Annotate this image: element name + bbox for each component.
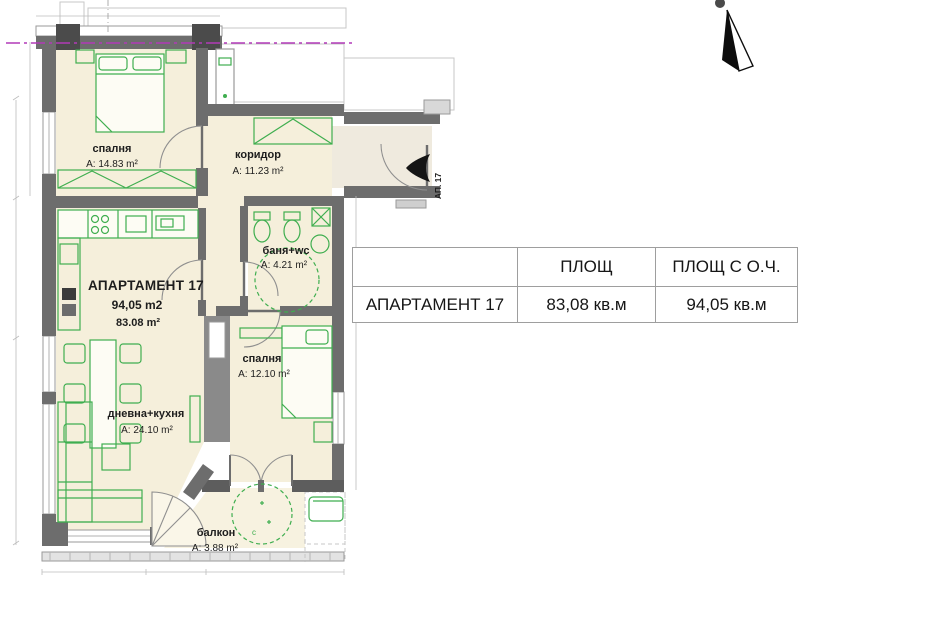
apartment-area-net: 83.08 m²: [116, 317, 160, 329]
room-area-corridor: A: 11.23 m²: [233, 166, 285, 177]
floor-plan-page: спалня A: 14.83 m² коридор A: 11.23 m² б…: [0, 0, 930, 627]
north-arrow-icon: [715, 0, 753, 71]
area-table: ПЛОЩ ПЛОЩ С О.Ч. АПАРТАМЕНТ 17 83,08 кв.…: [352, 247, 798, 323]
room-label-bedroom2: спалня: [243, 353, 282, 365]
area-table-header-area: ПЛОЩ: [518, 248, 656, 287]
area-table-header-row: ПЛОЩ ПЛОЩ С О.Ч.: [353, 248, 798, 287]
room-area-bedroom2: A: 12.10 m²: [238, 369, 290, 380]
room-label-bathroom: баня+wc: [262, 245, 309, 257]
area-table-header-empty: [353, 248, 518, 287]
apartment-title: АПАРТАМЕНТ 17: [88, 278, 204, 293]
room-area-bathroom: A: 4.21 m²: [261, 260, 308, 271]
room-area-balcony: A: 3.88 m²: [192, 543, 239, 554]
apartment-area-gross: 94,05 m2: [112, 298, 163, 312]
area-table-area-value: 83,08 кв.м: [518, 287, 656, 323]
neighbour-tub-icon: [309, 497, 343, 521]
area-table-apartment-name: АПАРТАМЕНТ 17: [353, 287, 518, 323]
room-label-bedroom1: спалня: [93, 143, 132, 155]
room-label-corridor: коридор: [235, 149, 281, 161]
room-area-living: A: 24.10 m²: [121, 425, 173, 436]
balcony-mark: c: [252, 528, 256, 537]
area-table-header-area-common: ПЛОЩ С О.Ч.: [656, 248, 798, 287]
bed-icon: [96, 54, 164, 132]
area-table-area-common-value: 94,05 кв.м: [656, 287, 798, 323]
kitchen-counter-icon: [58, 210, 198, 238]
room-area-bedroom1: A: 14.83 m²: [86, 159, 138, 170]
room-label-living: дневна+кухня: [108, 408, 185, 420]
room-label-balcony: балкон: [197, 527, 236, 539]
entrance-label: АП. 17: [433, 173, 443, 200]
area-table-data-row: АПАРТАМЕНТ 17 83,08 кв.м 94,05 кв.м: [353, 287, 798, 323]
